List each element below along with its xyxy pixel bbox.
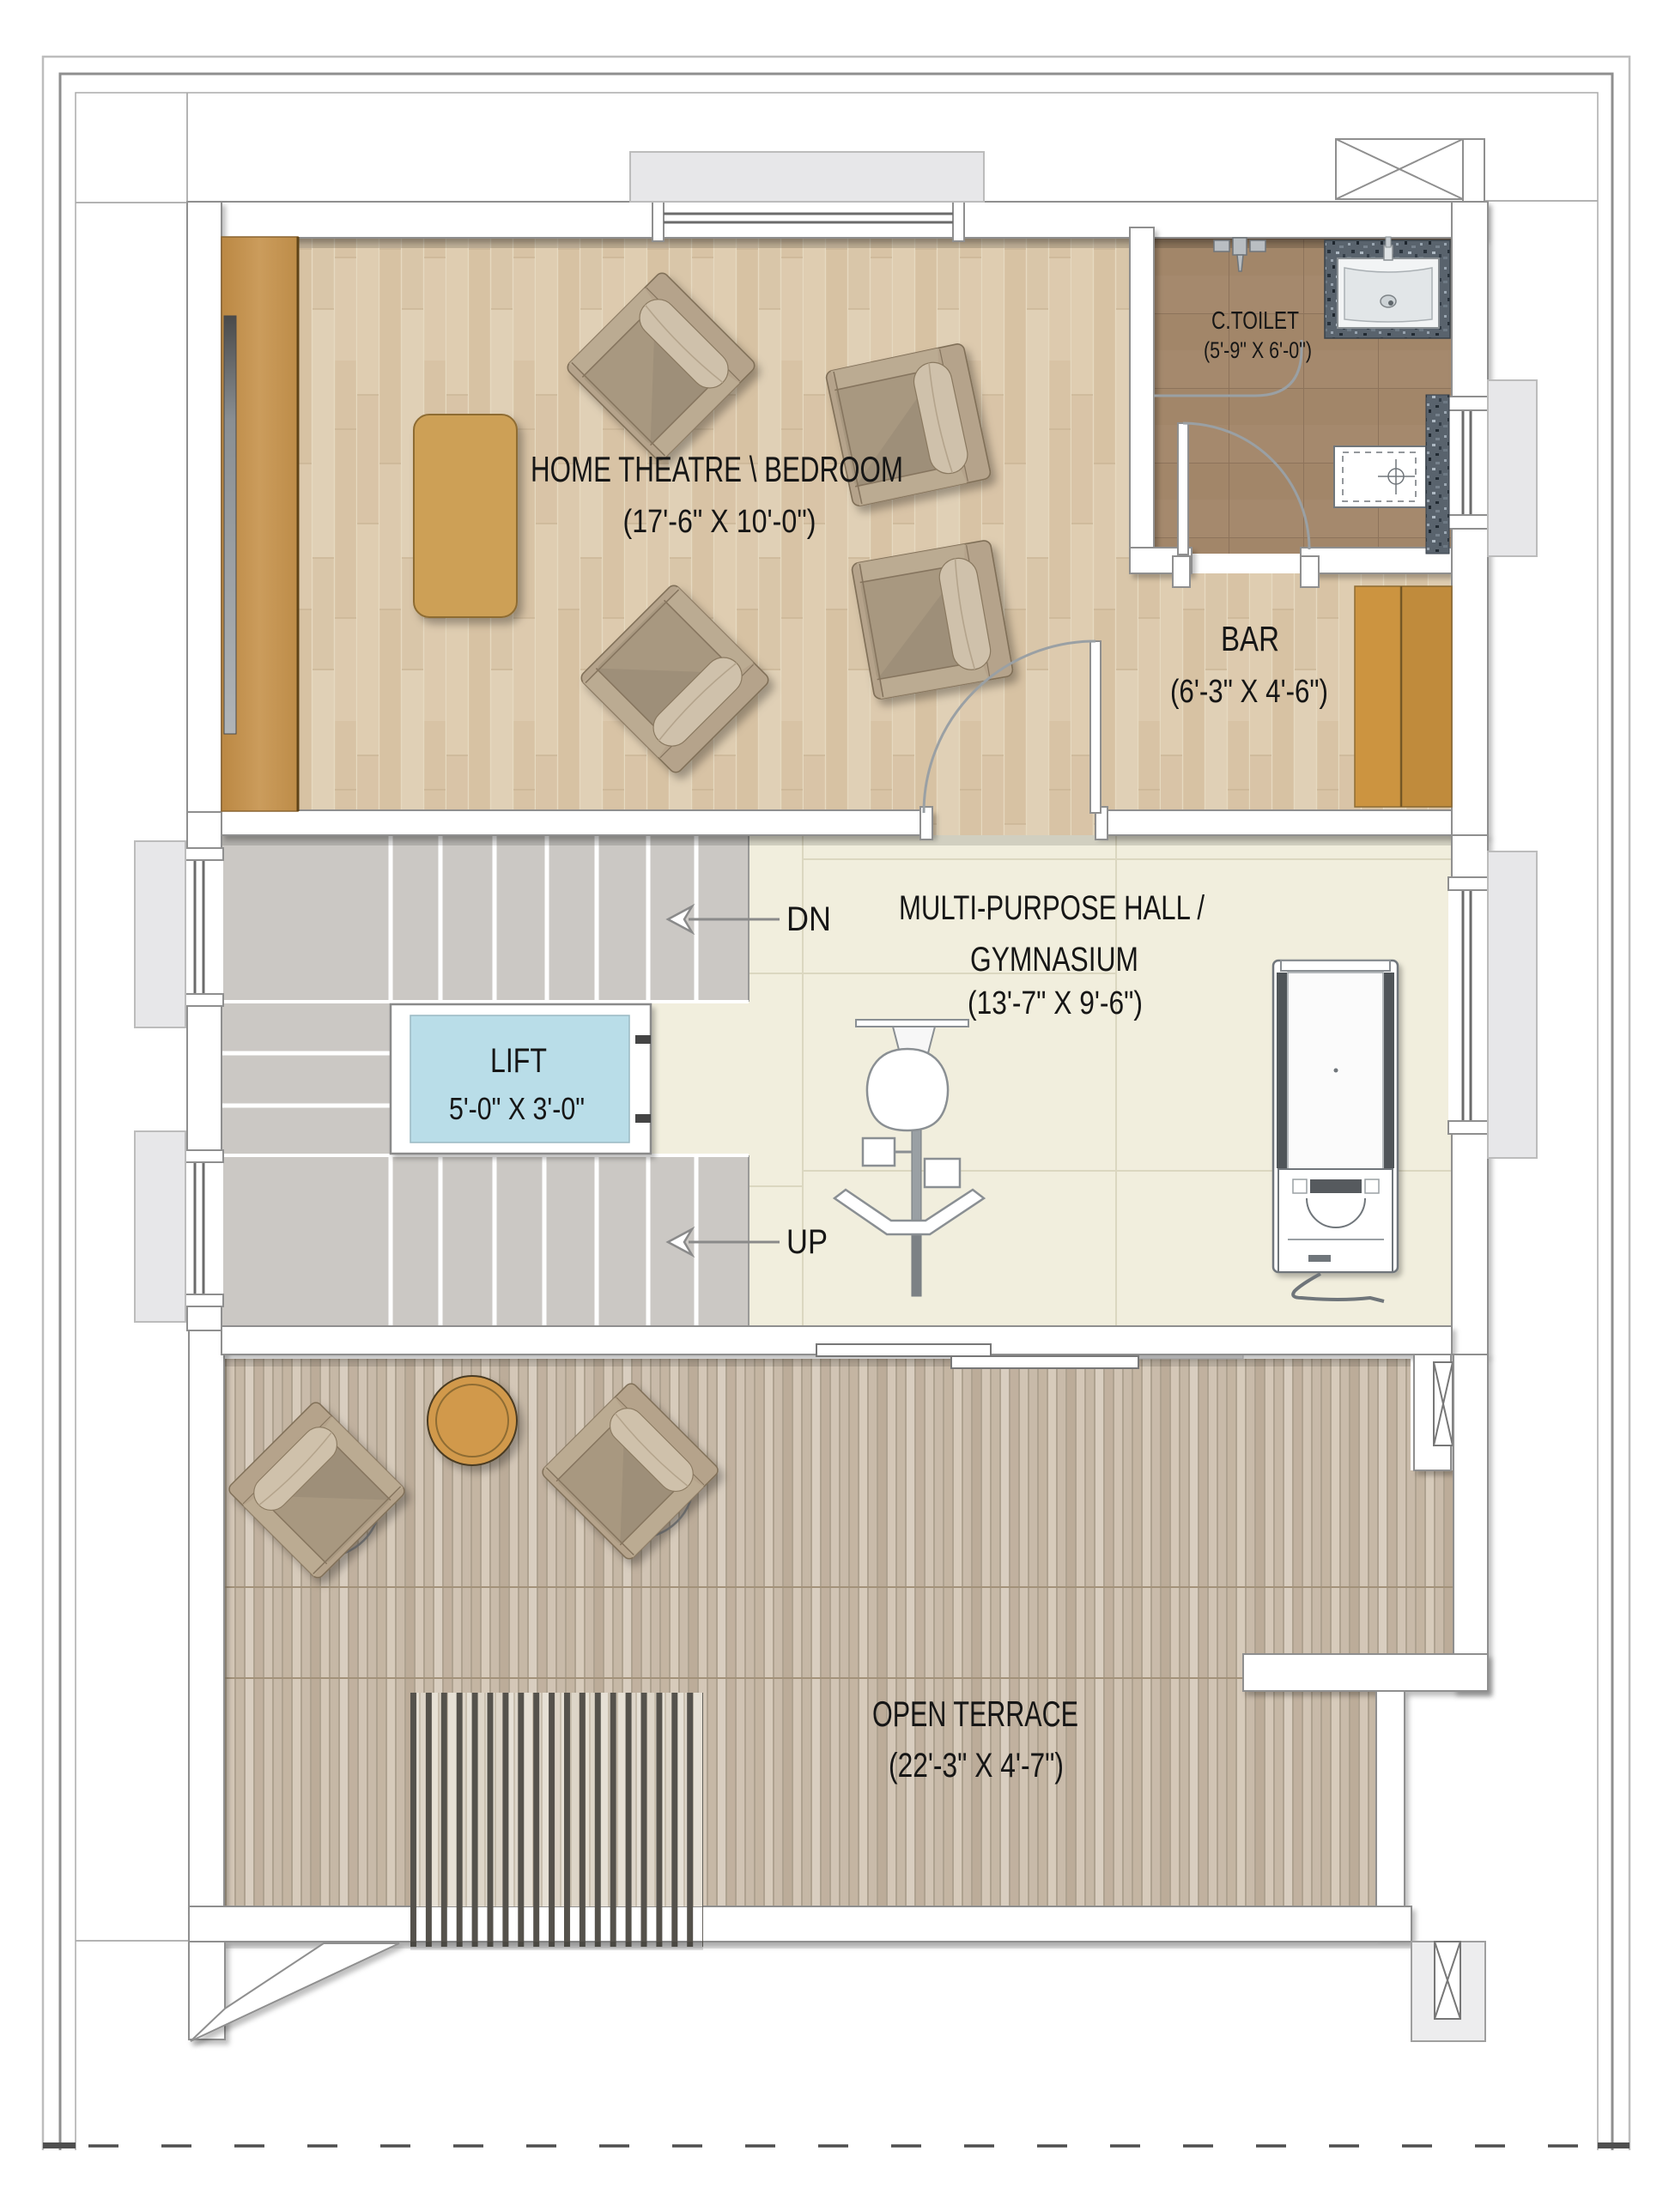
svg-text:BAR: BAR — [1221, 619, 1279, 658]
svg-text:(13'-7" X 9'-6"): (13'-7" X 9'-6") — [968, 985, 1143, 1021]
svg-text:UP: UP — [786, 1223, 828, 1261]
svg-text:5'-0" X 3'-0": 5'-0" X 3'-0" — [449, 1091, 585, 1126]
svg-text:(22'-3" X 4'-7"): (22'-3" X 4'-7") — [889, 1747, 1064, 1785]
svg-text:(5'-9" X 6'-0"): (5'-9" X 6'-0") — [1204, 337, 1312, 363]
svg-text:C.TOILET: C.TOILET — [1211, 307, 1299, 335]
svg-text:MULTI-PURPOSE HALL /: MULTI-PURPOSE HALL / — [899, 889, 1205, 927]
svg-text:DN: DN — [786, 900, 831, 938]
svg-text:(6'-3" X 4'-6"): (6'-3" X 4'-6") — [1170, 674, 1328, 710]
svg-text:(17'-6" X 10'-0"): (17'-6" X 10'-0") — [623, 504, 816, 540]
svg-text:GYMNASIUM: GYMNASIUM — [970, 941, 1138, 979]
svg-text:HOME THEATRE \ BEDROOM: HOME THEATRE \ BEDROOM — [531, 449, 903, 489]
svg-text:OPEN TERRACE: OPEN TERRACE — [872, 1694, 1078, 1734]
svg-text:LIFT: LIFT — [490, 1042, 547, 1080]
